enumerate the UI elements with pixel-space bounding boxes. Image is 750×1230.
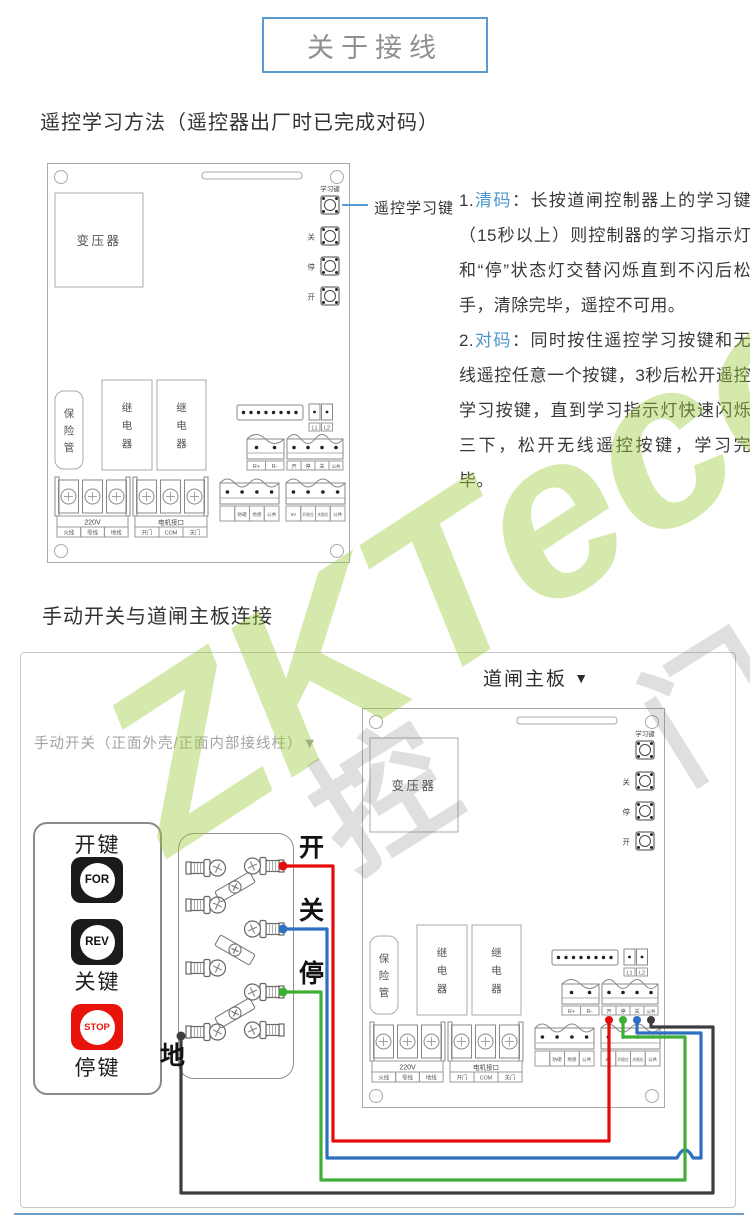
wire-label-close: 关	[299, 897, 324, 925]
dot-stop-switch	[279, 988, 288, 997]
wire-terminal-dots	[177, 862, 656, 1041]
dot-stop-board	[619, 1016, 627, 1024]
dot-ground-board	[647, 1016, 655, 1024]
wire-label-open: 开	[299, 834, 324, 862]
dot-close-switch	[279, 925, 288, 934]
wire-label-ground: 地	[160, 1042, 185, 1070]
wire-label-stop: 停	[299, 959, 324, 988]
wire-close	[283, 929, 701, 1158]
wiring-layer: 开 关 停 地	[0, 0, 750, 1230]
dot-open-board	[605, 1016, 613, 1024]
dot-ground-switch	[177, 1032, 186, 1041]
manual-page: 变压器 学习键 关 停 开	[0, 0, 750, 1230]
wire-ground	[181, 1020, 713, 1193]
wire-open	[283, 866, 609, 1141]
section-divider-line	[14, 1213, 744, 1215]
dot-close-board	[633, 1016, 641, 1024]
dot-open-switch	[279, 862, 288, 871]
